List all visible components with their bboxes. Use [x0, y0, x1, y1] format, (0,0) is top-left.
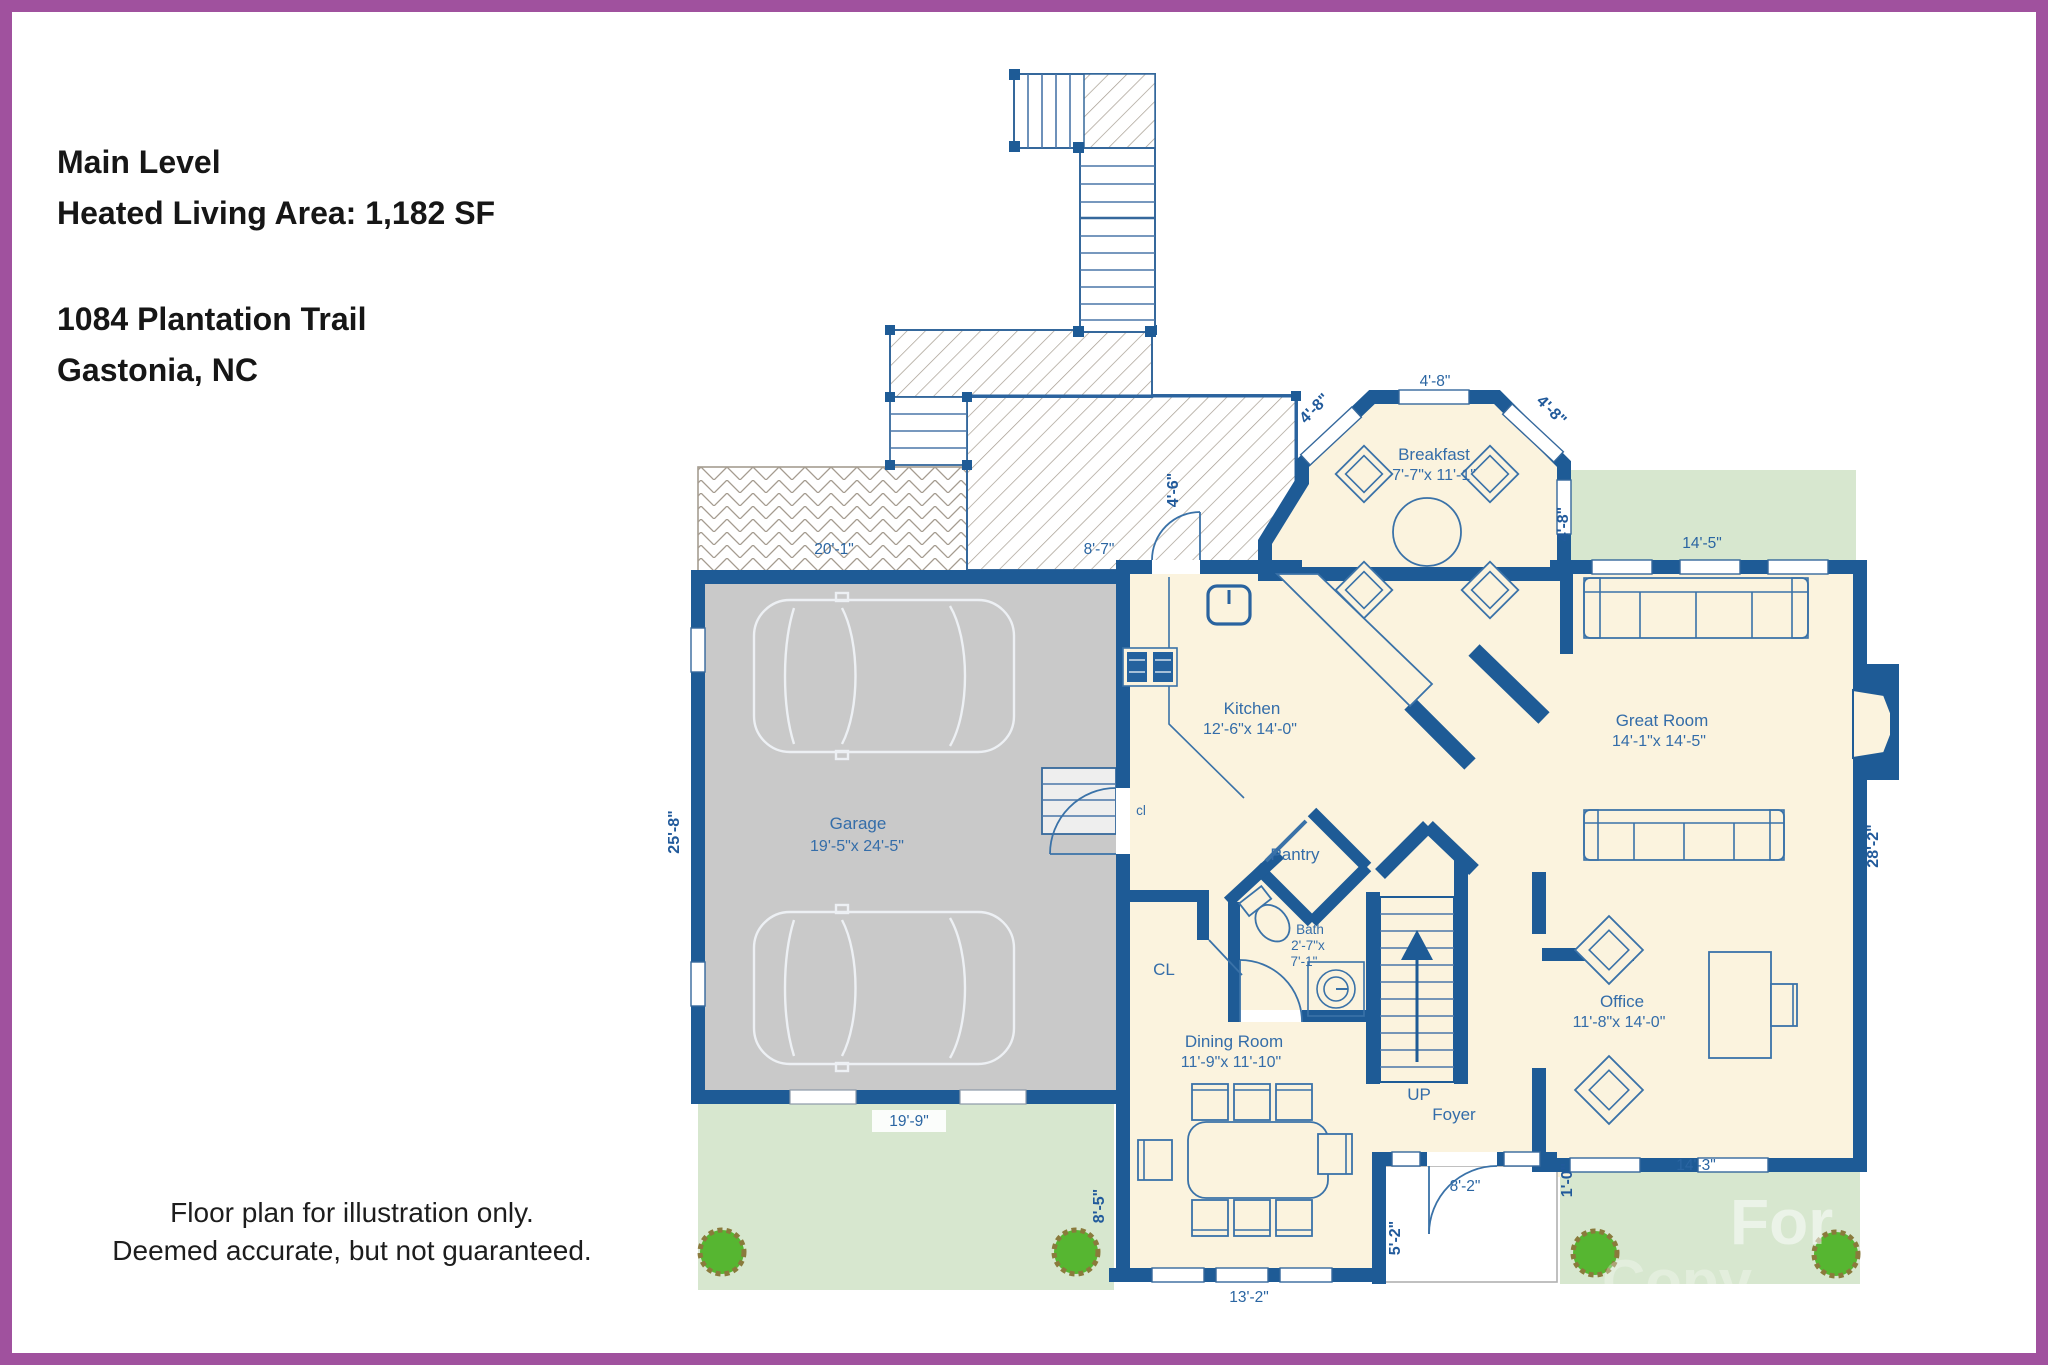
dim-dining-side: 8'-5"	[1091, 1189, 1108, 1224]
dim-deck-door: 4'-6"	[1165, 473, 1182, 508]
dim-office-front: 14'-3"	[1676, 1157, 1715, 1174]
garage-door-opening	[960, 1090, 1026, 1104]
kitchen-dims: 12'-6"x 14'-0"	[1203, 721, 1297, 738]
garage-label: Garage	[830, 814, 887, 833]
dim-entry-door: 8'-2"	[1450, 1178, 1481, 1195]
foyer-label: Foyer	[1432, 1105, 1476, 1124]
closet-small-label: cl	[1136, 803, 1146, 818]
stairs-up-label: UP	[1407, 1085, 1431, 1104]
exterior-staircase	[1009, 69, 1156, 337]
garage-door-opening	[790, 1090, 856, 1104]
garage-entry-stairs	[1042, 768, 1116, 834]
dining-dims: 11'-9"x 11'-10"	[1181, 1054, 1281, 1071]
dim-breakfast-left: 4'-8"	[1297, 391, 1333, 427]
great-room-label: Great Room	[1616, 711, 1709, 730]
breakfast-label: Breakfast	[1398, 445, 1470, 464]
bath-dims-2: 7'-1"	[1291, 954, 1318, 969]
garage-entry-opening	[1116, 788, 1130, 854]
closet-hall-label: CL	[1153, 960, 1175, 979]
sofa-short	[1584, 810, 1784, 860]
dim-great-room-side: 28'-2"	[1865, 824, 1882, 867]
great-room-dims: 14'-1"x 14'-5"	[1612, 733, 1706, 750]
dim-porch-offset: 1'-0"	[1559, 1163, 1576, 1198]
dim-breakfast-side: 4'-8"	[1555, 507, 1572, 542]
dim-patio: 20'-1"	[814, 541, 853, 558]
office-label: Office	[1600, 992, 1644, 1011]
bath-dims-1: 2'-7"x	[1291, 938, 1325, 953]
patio	[698, 467, 970, 577]
dim-garage-side: 25'-8"	[666, 810, 683, 853]
floor-plan-page: Main LevelHeated Living Area: 1,182 SF 1…	[12, 12, 2036, 1353]
bath-door-opening	[1240, 1010, 1302, 1022]
dim-deck: 8'-7"	[1084, 541, 1115, 558]
garage	[698, 577, 1123, 1097]
dim-dining-front: 13'-2"	[1229, 1289, 1268, 1306]
breakfast-dims: 7'-7"x 11'-1"	[1392, 467, 1476, 484]
bush	[1054, 1230, 1098, 1274]
deck-door-opening	[1152, 560, 1200, 574]
watermark-text-2: Copy	[1602, 1248, 1753, 1315]
dining-label: Dining Room	[1185, 1032, 1283, 1051]
dim-lawn-top-right: 14'-5"	[1682, 535, 1721, 552]
pantry-label: Pantry	[1270, 845, 1320, 864]
front-door-opening	[1427, 1152, 1497, 1166]
purple-border: Main LevelHeated Living Area: 1,182 SF 1…	[0, 0, 2048, 1365]
dim-porch-side: 5'-2"	[1387, 1221, 1404, 1256]
floor-plan: For Copy Breakfast 7'-7"x 11'-1" Kitchen…	[12, 12, 2036, 1353]
deck-stairs	[890, 397, 967, 465]
interior-stairs	[1380, 897, 1454, 1082]
garage-dims: 19'-5"x 24'-5"	[810, 838, 904, 855]
dining-table	[1188, 1122, 1328, 1198]
dim-breakfast-top: 4'-8"	[1420, 373, 1451, 390]
dim-breakfast-right: 4'-8"	[1533, 393, 1569, 429]
desk	[1709, 952, 1771, 1058]
bush	[700, 1230, 744, 1274]
office-dims: 11'-8"x 14'-0"	[1573, 1014, 1666, 1031]
dim-garage-front: 19'-9"	[889, 1113, 928, 1130]
sofa-long	[1584, 578, 1808, 638]
breakfast-table	[1393, 498, 1461, 566]
kitchen-label: Kitchen	[1224, 699, 1281, 718]
bath-label: Bath	[1296, 922, 1324, 937]
